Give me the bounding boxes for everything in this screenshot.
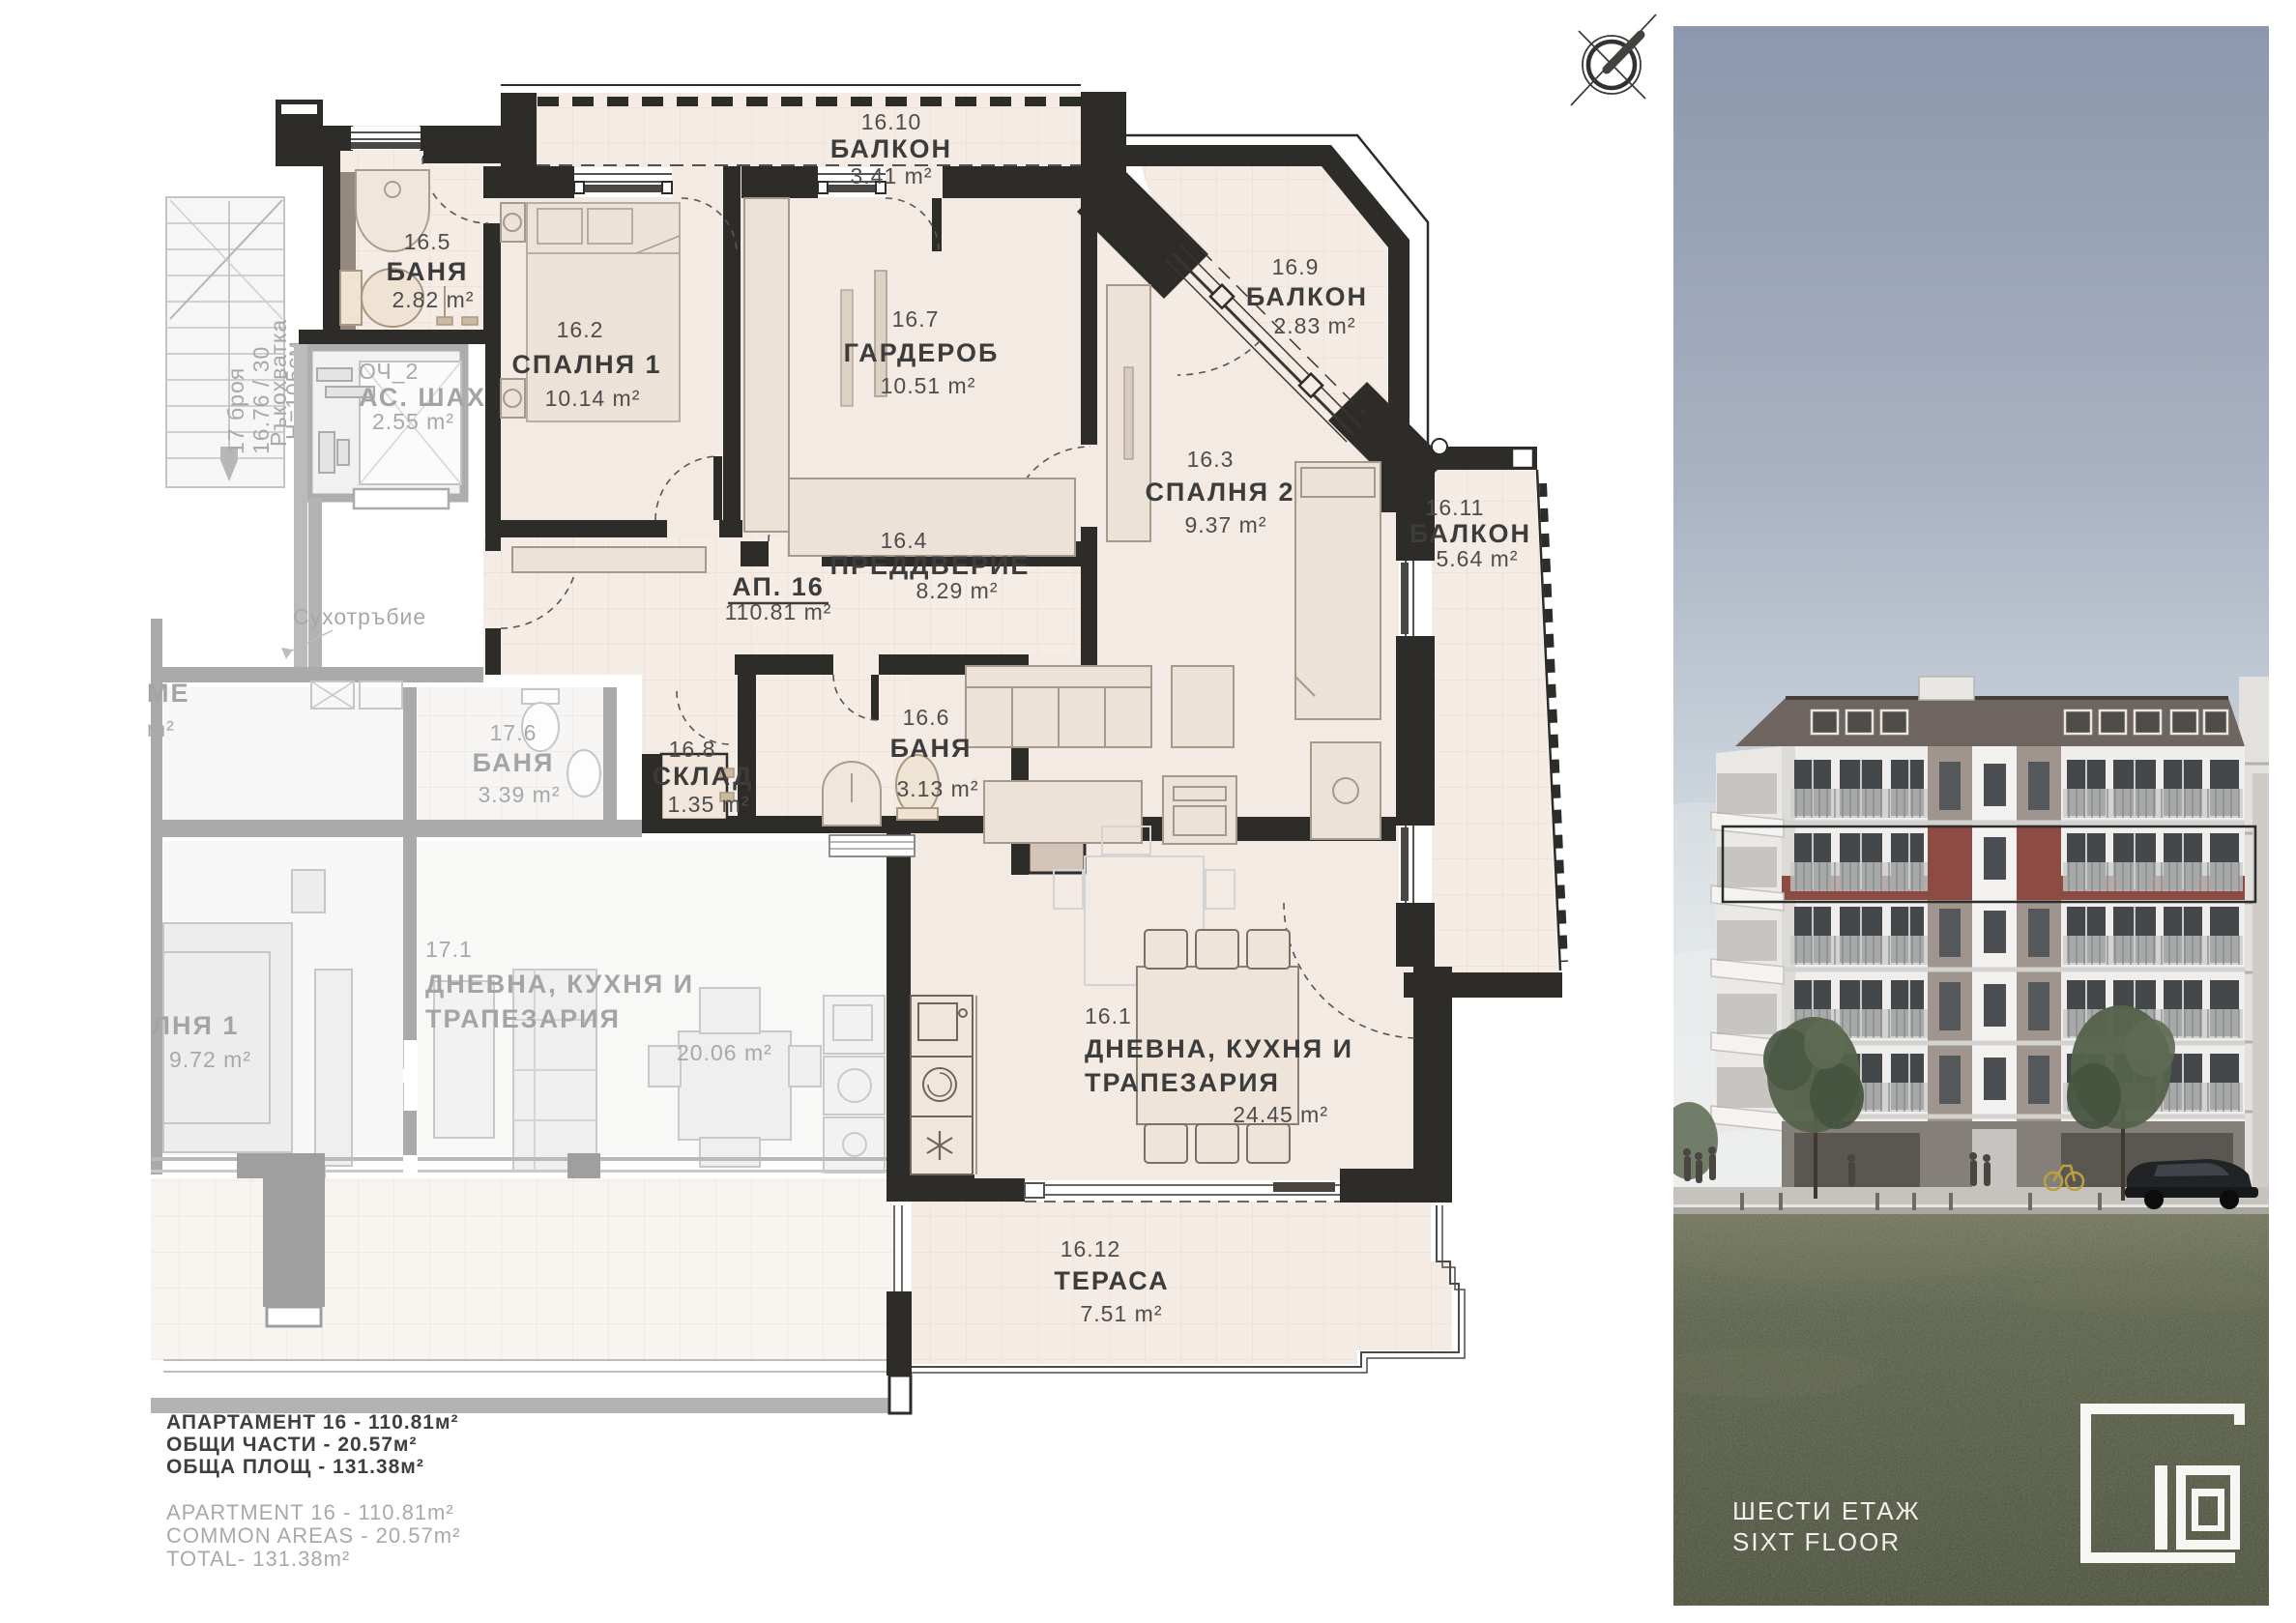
svg-text:ОБЩИ ЧАСТИ - 20.57м²: ОБЩИ ЧАСТИ - 20.57м² — [166, 1434, 417, 1456]
svg-text:m²: m² — [147, 716, 175, 741]
svg-text:3.39 m²: 3.39 m² — [479, 782, 561, 807]
svg-text:7.51 m²: 7.51 m² — [1081, 1301, 1163, 1326]
svg-text:9.72 m²: 9.72 m² — [169, 1047, 251, 1072]
svg-text:24.45 m²: 24.45 m² — [1233, 1102, 1328, 1127]
svg-text:3.13 m²: 3.13 m² — [897, 776, 979, 801]
svg-text:ДНЕВНА, КУХНЯ И: ДНЕВНА, КУХНЯ И — [425, 970, 694, 999]
svg-text:20.06 m²: 20.06 m² — [677, 1040, 772, 1065]
svg-text:СПАЛНЯ 2: СПАЛНЯ 2 — [1145, 478, 1294, 507]
svg-text:ТРАПЕЗАРИЯ: ТРАПЕЗАРИЯ — [1085, 1068, 1280, 1097]
svg-text:1.35 m²: 1.35 m² — [668, 792, 750, 817]
svg-text:ТЕРАСА: ТЕРАСА — [1054, 1266, 1169, 1295]
svg-text:16.2: 16.2 — [557, 317, 604, 342]
svg-text:ОБЩА ПЛОЩ - 131.38м²: ОБЩА ПЛОЩ - 131.38м² — [166, 1456, 424, 1478]
svg-text:СКЛАД: СКЛАД — [653, 762, 754, 791]
svg-text:17 броя: 17 броя — [223, 367, 248, 454]
svg-text:SIXT FLOOR: SIXT FLOOR — [1732, 1527, 1901, 1556]
svg-text:ОЧ_2: ОЧ_2 — [359, 359, 419, 384]
svg-text:16.9: 16.9 — [1272, 254, 1320, 279]
svg-text:БАЛКОН: БАЛКОН — [1246, 282, 1368, 311]
svg-text:2.82 m²: 2.82 m² — [392, 287, 475, 312]
svg-text:АП. 16: АП. 16 — [732, 572, 825, 601]
svg-text:COMMON AREAS - 20.57m²: COMMON AREAS - 20.57m² — [166, 1523, 460, 1548]
svg-text:БАНЯ: БАНЯ — [890, 734, 973, 763]
svg-text:16.11: 16.11 — [1426, 495, 1485, 520]
svg-text:БАНЯ: БАНЯ — [473, 748, 555, 777]
svg-text:APARTMENT 16 - 110.81m²: APARTMENT 16 - 110.81m² — [166, 1500, 454, 1524]
svg-text:МЕ: МЕ — [147, 679, 190, 708]
svg-text:ТРАПЕЗАРИЯ: ТРАПЕЗАРИЯ — [425, 1004, 621, 1033]
svg-text:17.1: 17.1 — [425, 937, 473, 962]
svg-text:БАНЯ: БАНЯ — [387, 257, 469, 286]
svg-text:2.55 m²: 2.55 m² — [372, 409, 454, 434]
svg-text:СПАЛНЯ 1: СПАЛНЯ 1 — [511, 350, 661, 379]
svg-text:ГАРДЕРОБ: ГАРДЕРОБ — [844, 338, 1000, 367]
svg-text:16.10: 16.10 — [861, 109, 922, 134]
svg-text:9.37 m²: 9.37 m² — [1185, 512, 1267, 537]
svg-text:16.7: 16.7 — [892, 306, 940, 332]
svg-text:2.83 m²: 2.83 m² — [1274, 313, 1356, 338]
svg-text:16.12: 16.12 — [1061, 1236, 1121, 1261]
svg-text:16.1: 16.1 — [1085, 1003, 1132, 1029]
svg-text:ПРЕДДВЕРИЕ: ПРЕДДВЕРИЕ — [830, 551, 1031, 580]
svg-text:БАЛКОН: БАЛКОН — [1410, 519, 1531, 548]
svg-text:16.5: 16.5 — [404, 229, 451, 254]
svg-text:ЛНЯ 1: ЛНЯ 1 — [152, 1011, 239, 1040]
svg-text:110.81 m²: 110.81 m² — [725, 599, 832, 624]
svg-text:8.29 m²: 8.29 m² — [916, 578, 999, 603]
svg-text:10.14 m²: 10.14 m² — [545, 386, 641, 411]
svg-text:ШЕСТИ ЕТАЖ: ШЕСТИ ЕТАЖ — [1732, 1496, 1921, 1525]
svg-text:БАЛКОН: БАЛКОН — [830, 134, 952, 163]
svg-text:16.8: 16.8 — [669, 737, 716, 762]
svg-text:TOTAL- 131.38m²: TOTAL- 131.38m² — [166, 1547, 350, 1571]
svg-text:ДНЕВНА, КУХНЯ И: ДНЕВНА, КУХНЯ И — [1085, 1034, 1353, 1063]
svg-text:3.41 m²: 3.41 m² — [851, 163, 933, 188]
svg-text:10.51 m²: 10.51 m² — [881, 373, 976, 398]
svg-text:16.6: 16.6 — [903, 705, 950, 730]
svg-text:16.4: 16.4 — [881, 528, 928, 553]
svg-text:Сухотръбие: Сухотръбие — [293, 604, 426, 629]
svg-text:5.64 m²: 5.64 m² — [1437, 546, 1519, 571]
svg-text:АПАРТАМЕНТ 16 - 110.81м²: АПАРТАМЕНТ 16 - 110.81м² — [166, 1411, 459, 1434]
svg-text:16.3: 16.3 — [1187, 447, 1235, 472]
svg-text:17.6: 17.6 — [490, 720, 538, 745]
